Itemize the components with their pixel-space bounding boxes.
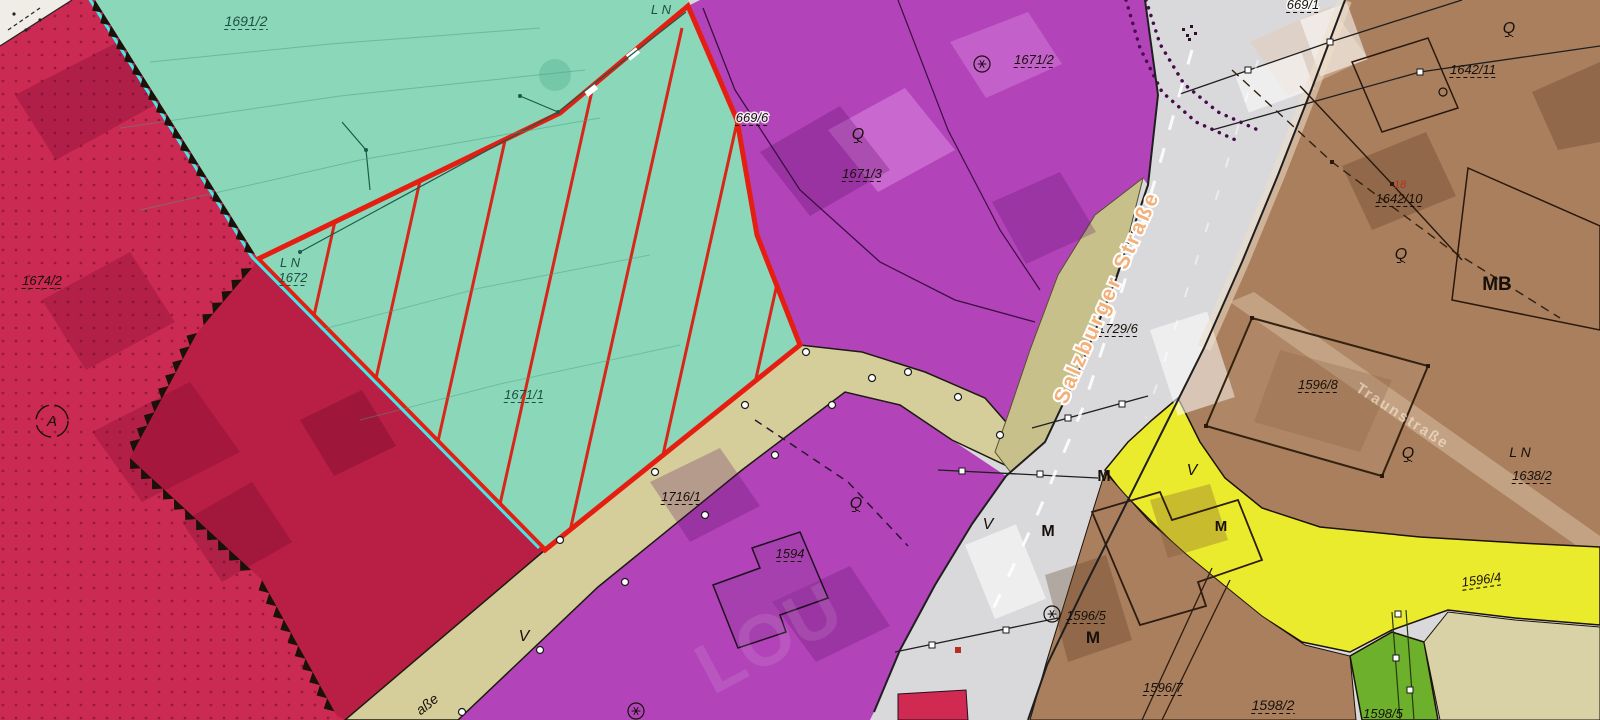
map-label: MB — [1482, 274, 1512, 295]
map-label: 1596/5 — [1066, 608, 1107, 624]
survey-point-dark — [1330, 160, 1334, 164]
map-label: L N — [280, 255, 301, 270]
svg-text:669/1: 669/1 — [1287, 0, 1320, 12]
svg-text:L N: L N — [651, 2, 672, 17]
svg-text:L N: L N — [280, 255, 301, 270]
map-label: 18 — [1394, 179, 1407, 191]
svg-text:1596/8: 1596/8 — [1298, 377, 1339, 392]
map-label: M — [1097, 468, 1110, 485]
crimson-patch-south[interactable] — [898, 690, 968, 720]
survey-point-square — [929, 642, 935, 648]
map-label: 1672 — [279, 270, 309, 286]
map-label: M — [1041, 523, 1054, 540]
survey-point-circle — [803, 349, 810, 356]
map-label: 1596/8 — [1298, 377, 1339, 393]
map-label: Q — [850, 495, 862, 512]
survey-point-square — [1417, 69, 1423, 75]
tree-blob — [539, 59, 571, 91]
survey-point-dark — [1426, 364, 1430, 368]
map-label: 1671/1 — [504, 387, 545, 403]
survey-point-square — [1003, 627, 1009, 633]
survey-point-square — [1327, 39, 1333, 45]
svg-text:V: V — [983, 516, 995, 533]
survey-point-green — [518, 94, 522, 98]
survey-point-square — [1395, 611, 1401, 617]
survey-point-square — [1119, 401, 1125, 407]
map-label: Q — [1395, 246, 1407, 263]
survey-point-circle — [829, 402, 836, 409]
survey-point-green — [298, 250, 302, 254]
svg-text:18: 18 — [1394, 179, 1407, 191]
svg-text:MB: MB — [1482, 274, 1512, 295]
svg-text:A: A — [46, 413, 57, 430]
svg-text:1598/5: 1598/5 — [1363, 706, 1404, 720]
survey-point-dark — [1250, 316, 1254, 320]
map-label: 1671/3 — [842, 166, 883, 182]
map-label: 1642/11 — [1449, 62, 1496, 78]
survey-point-circle — [869, 375, 876, 382]
survey-point-square — [1407, 687, 1413, 693]
survey-point-circle — [652, 469, 659, 476]
survey-point-square — [1037, 471, 1043, 477]
map-label: 669/1 — [1286, 0, 1320, 13]
map-label: V — [983, 516, 995, 533]
survey-point-dark — [1204, 424, 1208, 428]
survey-point-square — [1065, 415, 1071, 421]
survey-point-circle — [997, 432, 1004, 439]
map-label: 1642/10 — [1375, 191, 1423, 207]
svg-text:1598/2: 1598/2 — [1252, 697, 1295, 713]
map-label: 1671/2 — [1014, 52, 1055, 68]
svg-text:Q: Q — [850, 495, 862, 512]
svg-text:1671/3: 1671/3 — [842, 166, 883, 181]
survey-point-green — [364, 148, 368, 152]
corner-dot — [38, 18, 41, 21]
svg-text:L N: L N — [1509, 444, 1531, 460]
map-label: 1674/2 — [22, 273, 63, 289]
map-label: Q — [1503, 20, 1515, 37]
svg-text:V: V — [519, 628, 531, 645]
map-label: V — [519, 628, 531, 645]
svg-text:669/6: 669/6 — [736, 110, 769, 125]
svg-text:V: V — [1187, 462, 1199, 479]
survey-point-circle — [459, 709, 466, 716]
map-label: 1716/1 — [661, 489, 702, 505]
svg-text:1594: 1594 — [776, 546, 805, 561]
corner-dot — [24, 28, 27, 31]
map-label: 1594 — [776, 546, 805, 562]
svg-text:M: M — [1215, 518, 1228, 535]
map-label: Q — [852, 126, 864, 143]
svg-text:M: M — [1086, 628, 1100, 647]
svg-text:Q: Q — [1402, 445, 1414, 462]
survey-point-square — [1393, 655, 1399, 661]
map-label: L N — [651, 2, 672, 17]
svg-text:1671/2: 1671/2 — [1014, 52, 1055, 67]
zone-beige-southeast[interactable] — [1424, 612, 1600, 720]
zoning-map-canvas[interactable]: LOU 1691/2L NL N16721671/11674/21716/1V1… — [0, 0, 1600, 720]
map-label: 1596/7 — [1143, 680, 1184, 696]
map-label: 1691/2 — [224, 13, 268, 30]
small-red-dot-symbol — [955, 647, 961, 653]
map-label: 1598/5 — [1363, 706, 1404, 720]
svg-text:Q: Q — [852, 126, 864, 143]
survey-point-square — [1245, 67, 1251, 73]
map-label: Q — [1402, 445, 1414, 462]
svg-text:1672: 1672 — [279, 270, 309, 285]
svg-text:1671/1: 1671/1 — [504, 387, 544, 402]
svg-text:1642/11: 1642/11 — [1450, 62, 1496, 77]
svg-text:M: M — [1097, 468, 1110, 485]
survey-point-circle — [537, 647, 544, 654]
svg-text:M: M — [1041, 523, 1054, 540]
survey-point-circle — [742, 402, 749, 409]
survey-point-circle — [955, 394, 962, 401]
map-label: 1598/2 — [1251, 697, 1295, 714]
map-label: L N — [1509, 444, 1531, 460]
svg-text:1691/2: 1691/2 — [225, 13, 268, 29]
survey-point-green — [556, 110, 560, 114]
corner-dot — [12, 12, 15, 15]
survey-point-circle — [772, 452, 779, 459]
svg-text:1642/10: 1642/10 — [1376, 191, 1424, 206]
map-label: M — [1086, 628, 1100, 647]
svg-text:1596/5: 1596/5 — [1066, 608, 1107, 623]
survey-point-circle — [622, 579, 629, 586]
svg-text:1674/2: 1674/2 — [22, 273, 63, 288]
survey-point-circle — [557, 537, 564, 544]
svg-text:1638/2: 1638/2 — [1512, 468, 1553, 483]
survey-point-dark — [1380, 474, 1384, 478]
svg-text:1716/1: 1716/1 — [661, 489, 701, 504]
map-label: M — [1215, 518, 1228, 535]
map-label: 1638/2 — [1512, 468, 1553, 484]
survey-point-circle — [702, 512, 709, 519]
svg-text:1596/7: 1596/7 — [1143, 680, 1184, 695]
survey-point-square — [959, 468, 965, 474]
svg-text:Q: Q — [1395, 246, 1407, 263]
svg-text:Q: Q — [1503, 20, 1515, 37]
zoning-map-viewport[interactable]: LOU 1691/2L NL N16721671/11674/21716/1V1… — [0, 0, 1600, 720]
map-label: V — [1187, 462, 1199, 479]
survey-point-circle — [905, 369, 912, 376]
map-label: 669/6 — [735, 110, 769, 126]
